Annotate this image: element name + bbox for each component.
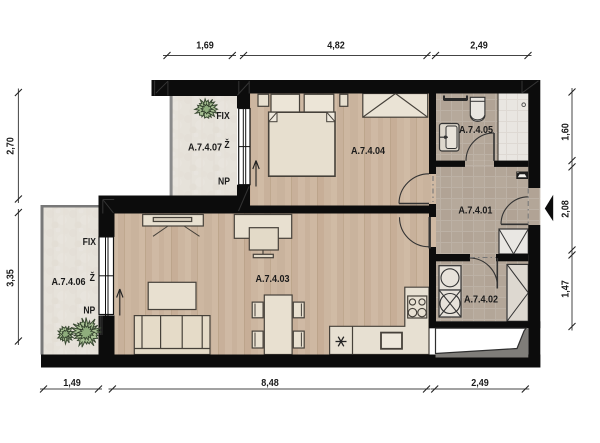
svg-text:2,49: 2,49: [470, 40, 488, 52]
svg-text:Ž: Ž: [90, 271, 96, 283]
svg-text:A.7.4.03: A.7.4.03: [255, 273, 290, 285]
svg-text:FIX: FIX: [83, 236, 97, 247]
svg-text:A.7.4.07: A.7.4.07: [188, 142, 223, 154]
svg-text:A.7.4.01: A.7.4.01: [458, 205, 493, 217]
svg-text:2,70: 2,70: [5, 137, 17, 155]
svg-text:3,35: 3,35: [5, 269, 17, 287]
svg-text:A.7.4.02: A.7.4.02: [464, 294, 499, 306]
svg-text:Ž: Ž: [224, 138, 230, 150]
svg-text:1,69: 1,69: [196, 40, 214, 52]
svg-text:NP: NP: [218, 176, 230, 187]
svg-text:2,08: 2,08: [560, 200, 572, 218]
svg-text:A.7.4.05: A.7.4.05: [459, 124, 494, 136]
svg-text:2,49: 2,49: [471, 377, 489, 389]
svg-text:NP: NP: [83, 305, 95, 316]
svg-text:A.7.4.04: A.7.4.04: [351, 145, 386, 157]
svg-text:1,49: 1,49: [63, 377, 81, 389]
svg-text:FIX: FIX: [216, 110, 230, 121]
svg-text:A.7.4.06: A.7.4.06: [51, 276, 86, 288]
svg-text:1,60: 1,60: [560, 123, 572, 141]
svg-text:1,47: 1,47: [560, 280, 572, 298]
svg-text:8,48: 8,48: [261, 377, 279, 389]
svg-text:4,82: 4,82: [327, 40, 345, 52]
